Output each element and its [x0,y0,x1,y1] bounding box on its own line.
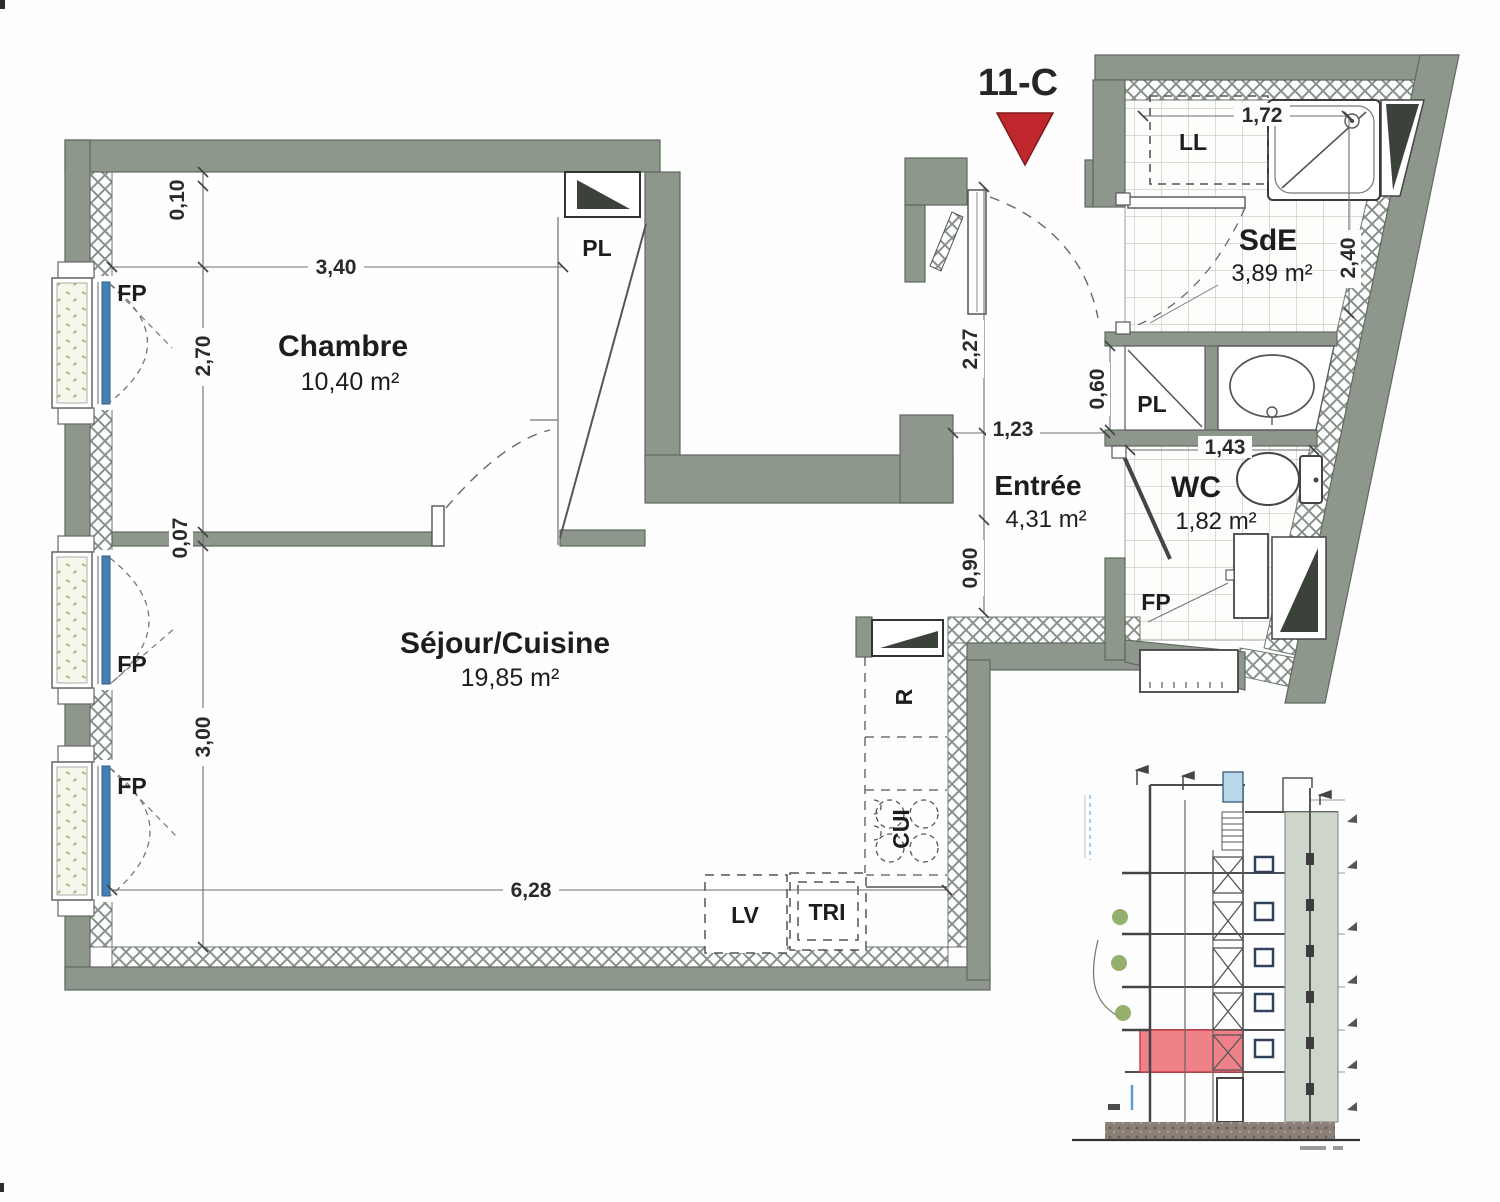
chambre-area: 10,40 m² [301,368,400,396]
entry-door-jamb [905,205,925,282]
closet-sde-label: PL [1137,391,1166,417]
wc-label: WC [1171,471,1221,504]
dim-partition: 0,07 [169,518,192,559]
sde-area: 3,89 m² [1231,260,1312,287]
wall-sejour-right [967,660,990,980]
partition-chambre [112,532,442,546]
window-sejour-1 [52,536,175,704]
window-sejour1-label: FP [117,651,146,677]
entry-threshold [930,212,963,271]
wall-vent-cap [856,617,872,657]
wall-bottom [65,967,990,990]
doors [432,190,1245,622]
wall-wc-left [1105,558,1125,660]
wall-courtyard-step [900,415,953,503]
dim-entree-upper: 2,27 [959,329,982,370]
floorplan-drawing: 0,10 3,40 2,70 0,07 3,00 6,28 2,27 0,90 … [0,0,1500,1202]
closet-chambre-diagonal [560,224,646,538]
tree-icon [1093,940,1122,1018]
sorting-bin-label: TRI [808,899,845,925]
entry-door-stub [905,158,967,205]
sde-door-leaf [1128,197,1245,208]
toilet [1237,453,1322,505]
floorplan-page: 0,10 3,40 2,70 0,07 3,00 6,28 2,27 0,90 … [0,0,1500,1202]
scan-artifact [0,0,5,9]
ground-hatch [1105,1122,1335,1140]
unit-pointer-icon [997,113,1053,165]
entree-label: Entrée [994,470,1081,501]
dim-entree-lower: 0,90 [959,548,982,589]
wall-sde-top [1095,55,1459,80]
fridge-label: R [891,688,917,705]
building-section [1072,766,1360,1150]
dim-wc-width: 1,43 [1205,436,1246,459]
sejour-label: Séjour/Cuisine [400,627,610,660]
entree-area: 4,31 m² [1005,506,1086,533]
dishwasher-label: LV [731,902,759,928]
wall-pl2-divider [1205,346,1218,430]
section-door [1217,1078,1243,1122]
chambre-door-leaf [432,506,444,546]
dim-entree-width: 1,23 [993,418,1034,441]
roof-window [1223,772,1243,802]
window-sejour2-label: FP [117,773,146,799]
wall-pl-bottom [560,530,645,546]
sde-label: SdE [1239,224,1297,257]
window-chambre [52,262,172,424]
dim-chambre-width: 3,40 [316,256,357,279]
dim-sde-height: 2,40 [1337,238,1360,279]
cooktop-label: CUI [888,809,914,849]
dim-closet-sde: 0,60 [1086,369,1109,410]
chambre-door-swing [446,430,550,508]
washing-machine-label: LL [1179,129,1207,155]
sejour-area: 19,85 m² [461,664,560,692]
dim-chambre-offset: 0,10 [166,180,189,221]
wc-window-radiator [1140,650,1238,692]
unit-marker: 11-C [978,62,1058,165]
dim-sejour-width: 6,28 [511,879,552,902]
facade-windows [1255,857,1273,1057]
left-windows [52,262,176,916]
closet-chambre-label: PL [582,235,611,261]
scan-artifact [0,1183,4,1192]
wc-radiator [1234,534,1268,618]
chambre-label: Chambre [278,330,408,363]
wall-chambre-top [65,140,660,172]
unit-label: 11-C [978,62,1058,104]
wall-sde-left-upper [1093,80,1125,207]
wc-area: 1,82 m² [1175,508,1256,535]
wall-sde-row [1105,332,1337,346]
dim-chambre-height: 2,70 [192,336,215,377]
level-arrows [1347,814,1357,1111]
window-wc-label: FP [1141,589,1170,615]
wall-sde-left-step [1085,160,1093,207]
dim-sejour-height: 3,00 [192,717,215,758]
window-chambre-label: FP [117,280,146,306]
wall-chambre-right [645,172,680,465]
dim-sde-width: 1,72 [1242,104,1283,127]
entry-door-swing [990,197,1098,318]
